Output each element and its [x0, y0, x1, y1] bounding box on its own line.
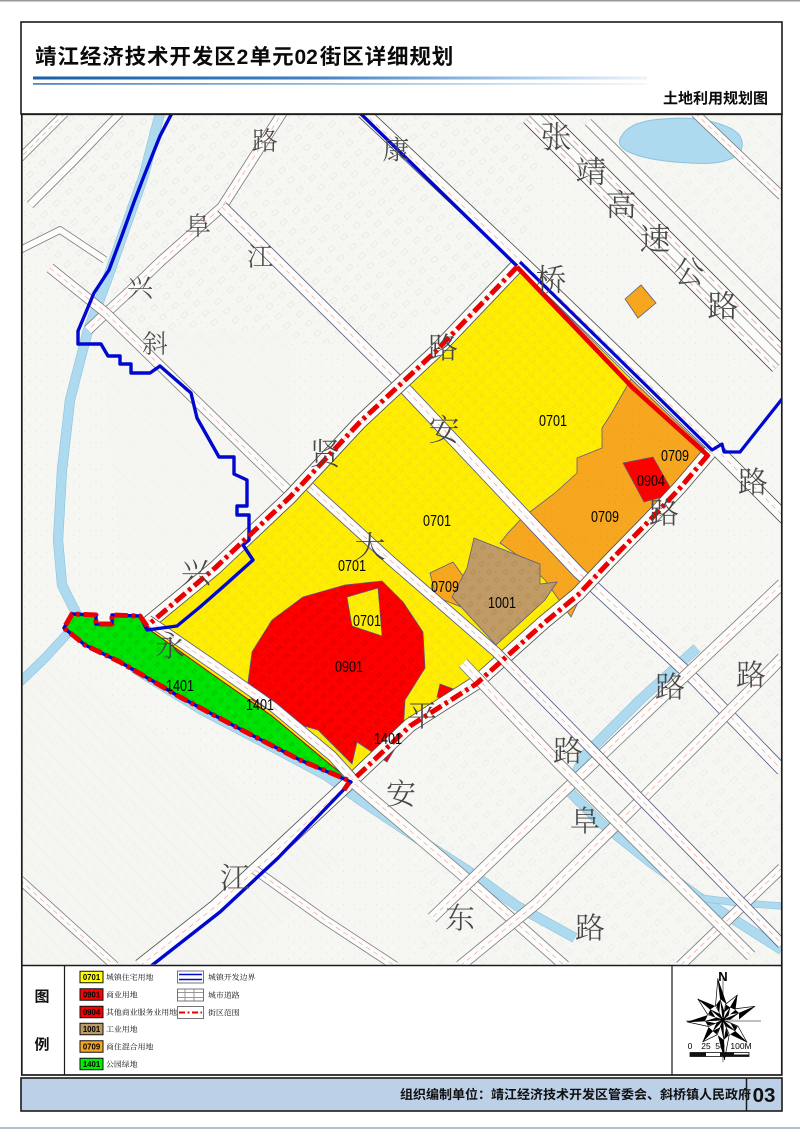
svg-text:0904: 0904 [83, 1008, 101, 1017]
svg-text:1001: 1001 [488, 595, 516, 612]
svg-text:0701: 0701 [353, 613, 381, 630]
svg-text:0709: 0709 [431, 579, 459, 596]
svg-text:0701: 0701 [539, 413, 567, 430]
svg-text:1401: 1401 [246, 697, 274, 714]
svg-text:0701: 0701 [338, 558, 366, 575]
svg-text:0: 0 [688, 1041, 693, 1051]
svg-text:0904: 0904 [637, 473, 665, 490]
svg-text:1001: 1001 [83, 1025, 101, 1034]
svg-text:1401: 1401 [374, 731, 402, 748]
svg-text:02: 02 [295, 46, 318, 69]
svg-text:0701: 0701 [83, 973, 101, 982]
svg-text:0901: 0901 [83, 991, 101, 1000]
svg-text:50: 50 [715, 1041, 725, 1051]
svg-text:N: N [718, 969, 727, 984]
svg-text:100M: 100M [730, 1041, 751, 1051]
svg-text:25: 25 [701, 1041, 711, 1051]
svg-text:0901: 0901 [335, 659, 363, 676]
svg-text:1401: 1401 [83, 1060, 101, 1069]
svg-text:0701: 0701 [423, 513, 451, 530]
svg-text:0709: 0709 [661, 448, 689, 465]
svg-text:0709: 0709 [83, 1043, 101, 1052]
svg-text:1401: 1401 [166, 678, 194, 695]
svg-text:03: 03 [753, 1084, 776, 1107]
svg-text:2: 2 [237, 46, 249, 69]
svg-text:0709: 0709 [591, 509, 619, 526]
